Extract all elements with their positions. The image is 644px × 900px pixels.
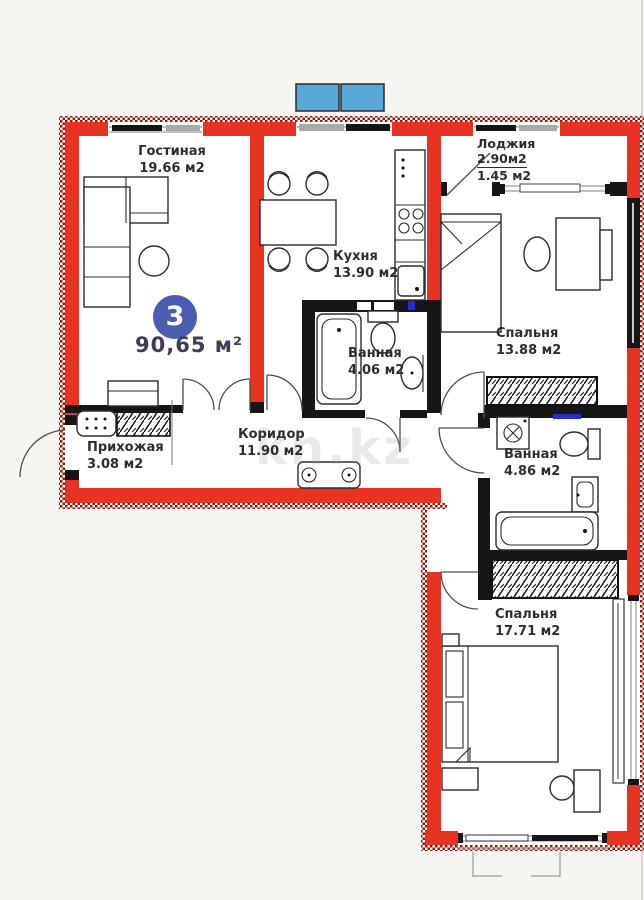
bed-double xyxy=(442,646,558,762)
kitchen-window xyxy=(296,122,392,136)
desk2 xyxy=(574,770,600,812)
bath1-area: 4.06 м2 xyxy=(348,362,404,379)
ac-units xyxy=(296,84,384,111)
coffee-table xyxy=(139,246,169,276)
label-loggia: Лоджия 2.90м2 1.45 м2 xyxy=(477,136,535,183)
label-bedroom1: Спальня 13.88 м2 xyxy=(496,325,561,359)
bedside-shelf xyxy=(442,634,459,646)
loggia-area-full: 2.90м2 xyxy=(477,151,527,168)
hallway-name: Прихожая xyxy=(87,439,164,456)
stool xyxy=(550,776,574,800)
bath2-area: 4.86 м2 xyxy=(504,463,560,480)
loggia-area-counted: 1.45 м2 xyxy=(477,168,535,183)
label-bedroom2: Спальня 17.71 м2 xyxy=(495,606,560,640)
toilet2 xyxy=(560,429,600,459)
label-living: Гостиная 19.66 м2 xyxy=(138,143,206,177)
bedroom1-name: Спальня xyxy=(496,325,561,342)
corridor-area: 11.90 м2 xyxy=(238,443,305,460)
balcony-outline xyxy=(458,849,607,877)
kitchen-counter xyxy=(395,150,425,300)
living-name: Гостиная xyxy=(138,143,206,160)
label-kitchen: Кухня 13.90 м2 xyxy=(333,248,398,282)
floorplan-page: kn.kz Гостиная 19.66 м2 Кухня 13.90 м2 Л… xyxy=(0,0,644,900)
wardrobe1 xyxy=(487,377,597,405)
hallway-area: 3.08 м2 xyxy=(87,456,164,473)
desk1-chair xyxy=(524,237,550,271)
loggia-inner-window xyxy=(500,182,610,196)
bedroom2-area: 17.71 м2 xyxy=(495,623,560,640)
bath2-name: Ванная xyxy=(504,446,560,463)
bed-single xyxy=(441,214,501,332)
nightstand xyxy=(442,768,478,790)
bathtub2 xyxy=(496,512,598,550)
loggia-window xyxy=(473,122,560,136)
living-area: 19.66 м2 xyxy=(138,160,206,177)
shoe-cabinet xyxy=(77,411,116,436)
bedroom1-area: 13.88 м2 xyxy=(496,342,561,359)
dining-table xyxy=(260,200,336,245)
washing-machine xyxy=(497,417,529,449)
tv-stand xyxy=(108,381,158,406)
wardrobe2 xyxy=(492,560,618,598)
total-area: 90,65 м² xyxy=(135,333,243,357)
kitchen-name: Кухня xyxy=(333,248,398,265)
label-bath2: Ванная 4.86 м2 xyxy=(504,446,560,480)
entrance-door-arc xyxy=(20,430,65,477)
living-window xyxy=(108,122,203,136)
label-corridor: Коридор 11.90 м2 xyxy=(238,426,305,460)
label-hallway: Прихожая 3.08 м2 xyxy=(87,439,164,473)
bath1-name: Ванная xyxy=(348,345,404,362)
label-bath1: Ванная 4.06 м2 xyxy=(348,345,404,379)
loggia-name: Лоджия xyxy=(477,136,535,151)
kitchen-sink xyxy=(398,266,424,296)
corridor-name: Коридор xyxy=(238,426,305,443)
bedroom2-bottom-window xyxy=(458,831,607,845)
kitchen-area: 13.90 м2 xyxy=(333,265,398,282)
hall-wardrobe xyxy=(117,410,170,436)
sink2 xyxy=(572,477,598,512)
bedroom2-name: Спальня xyxy=(495,606,560,623)
